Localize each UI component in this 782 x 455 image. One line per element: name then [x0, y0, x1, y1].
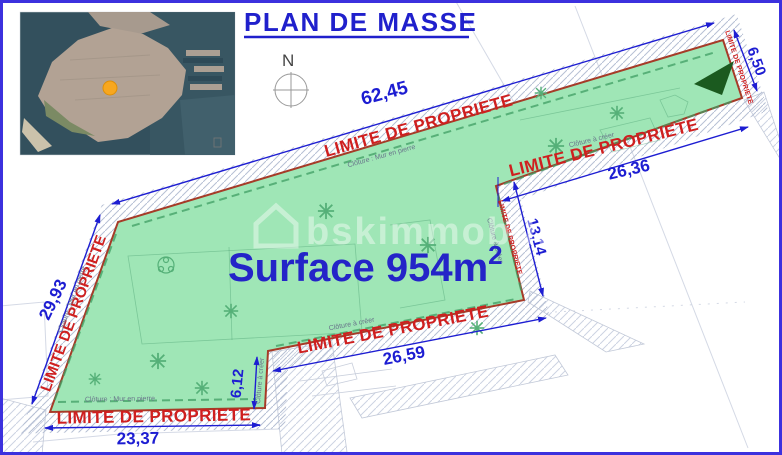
site-plan-svg: 62,45 6,50 26,36 13,14 26,59 6,12 23,37 … [0, 0, 782, 455]
dim-label-bottom-left: 23,37 [116, 429, 159, 449]
vegetation-icon [610, 106, 624, 120]
vegetation-icon [195, 381, 209, 395]
surface-label-sup: 2 [488, 240, 502, 270]
aerial-inset [20, 12, 235, 155]
vegetation-icon [535, 87, 548, 100]
vegetation-icon [224, 304, 238, 318]
limite-label-bottom-left: LIMITE DE PROPRIETE [56, 405, 251, 427]
location-marker [103, 81, 117, 95]
inset-sea-southeast [180, 95, 235, 155]
dim-label-step: 6,12 [228, 368, 248, 399]
plan-de-masse-page: 62,45 6,50 26,36 13,14 26,59 6,12 23,37 … [0, 0, 782, 455]
surface-label-text: Surface 954m [228, 246, 488, 290]
compass-north-label: N [282, 51, 294, 70]
surface-label: Surface 954m2 [228, 240, 503, 290]
vegetation-icon [150, 353, 166, 369]
vegetation-icon [89, 373, 102, 386]
fence-label-bottom: Clôture : Mur en pierre [85, 395, 155, 403]
page-title: PLAN DE MASSE [244, 7, 477, 37]
